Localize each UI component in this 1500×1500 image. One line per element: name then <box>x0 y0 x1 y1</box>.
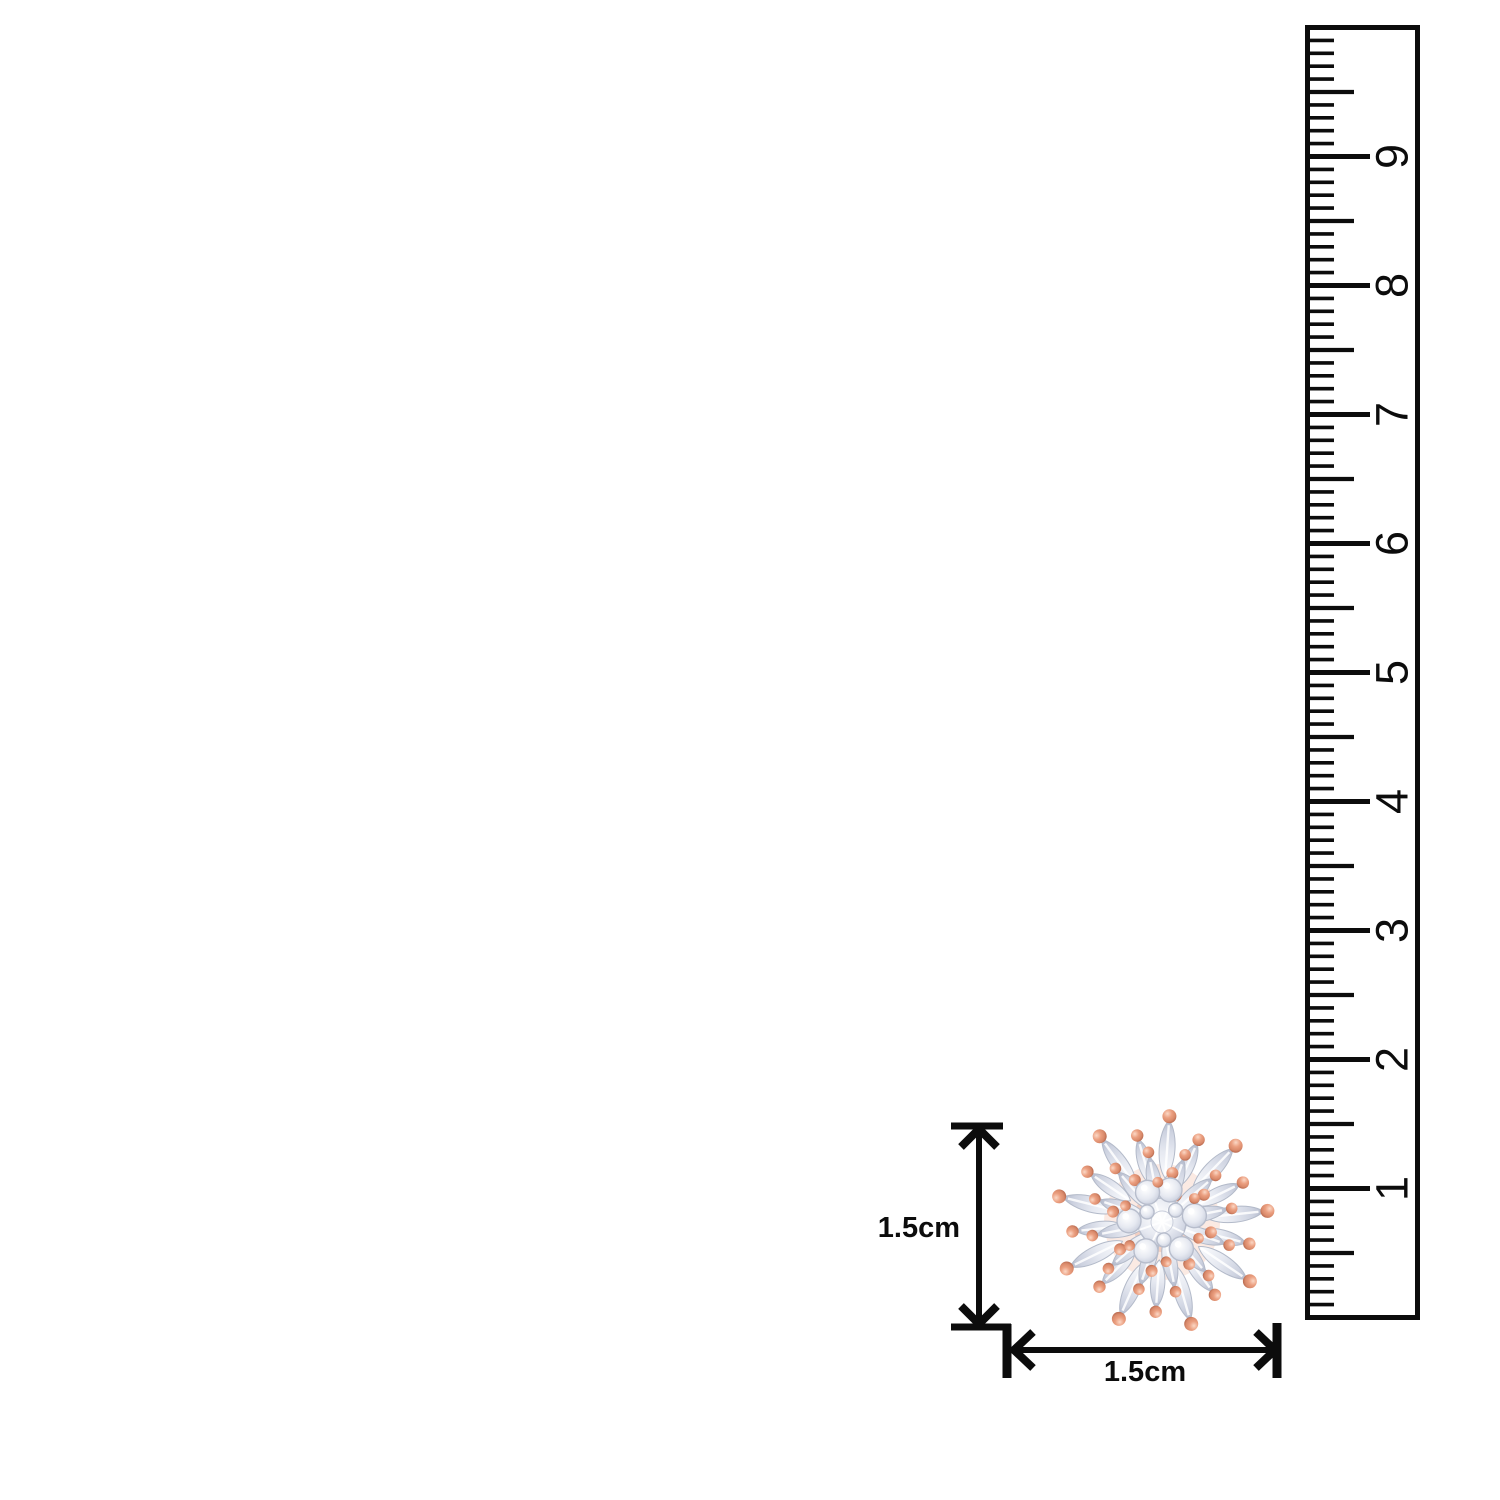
rose-gold-bead <box>1130 1128 1145 1143</box>
round-crystal <box>1156 1232 1171 1247</box>
ruler-number: 7 <box>1367 402 1418 427</box>
width-dimension-label: 1.5cm <box>1044 1356 1246 1389</box>
rose-gold-bead <box>1260 1203 1275 1218</box>
rose-gold-bead <box>1242 1236 1257 1251</box>
rose-gold-bead <box>1066 1225 1080 1239</box>
rose-gold-bead <box>1162 1109 1177 1124</box>
rose-gold-bead <box>1183 1315 1200 1332</box>
size-guide-image: 123456789 1.5cm 1.5cm <box>0 0 1500 1500</box>
ruler-number: 3 <box>1367 918 1418 943</box>
round-crystal <box>1182 1203 1208 1229</box>
ruler: 123456789 <box>1308 28 1418 1318</box>
earring-photo <box>1042 1101 1282 1338</box>
round-crystal <box>1140 1204 1155 1219</box>
rose-gold-bead <box>1149 1305 1162 1318</box>
ruler-number: 8 <box>1367 273 1418 298</box>
ruler-number: 6 <box>1367 531 1418 556</box>
height-dimension-label: 1.5cm <box>828 1212 960 1245</box>
rose-gold-bead <box>1051 1188 1068 1205</box>
round-crystal <box>1116 1208 1142 1234</box>
ruler-number: 9 <box>1367 144 1418 169</box>
ruler-number: 1 <box>1367 1176 1418 1201</box>
ruler-number: 2 <box>1367 1047 1418 1072</box>
ruler-number: 4 <box>1367 789 1418 814</box>
size-guide-graphics: 123456789 <box>0 0 1500 1500</box>
round-crystal <box>1169 1236 1195 1262</box>
ruler-number: 5 <box>1367 660 1418 685</box>
round-crystal <box>1133 1238 1159 1264</box>
round-crystal <box>1168 1203 1183 1218</box>
